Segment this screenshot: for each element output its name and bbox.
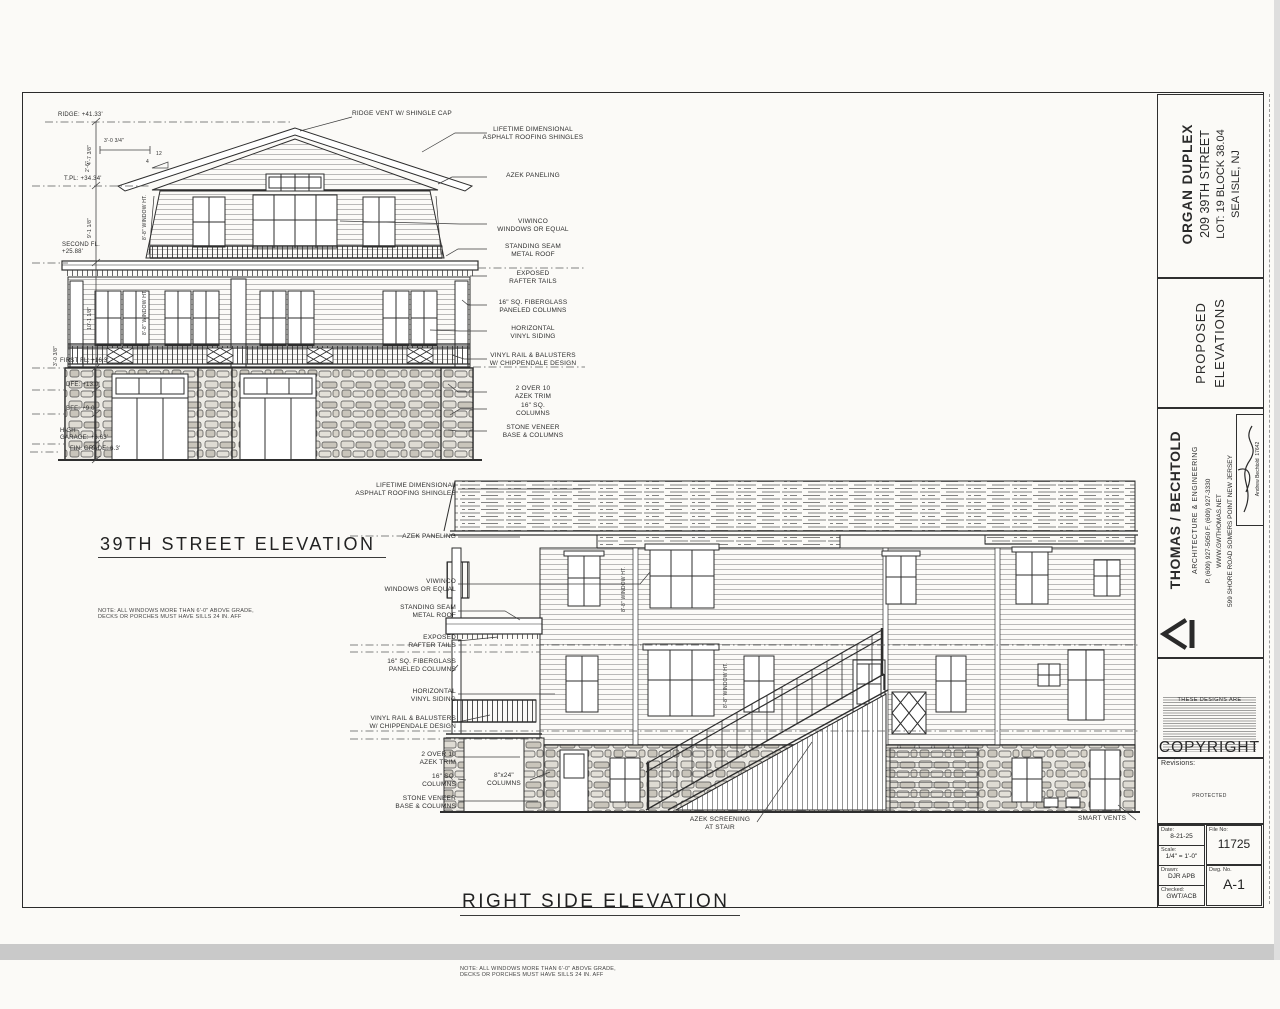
firm-website: WWW.GWTHOMAS.NET: [1214, 412, 1224, 650]
field-dwg-no: Dwg. No.A-1: [1206, 865, 1262, 906]
side-elevation-title-wrap: RIGHT SIDE ELEVATION NOTE: ALL WINDOWS M…: [460, 855, 740, 1009]
callout-vinyl-rail: VINYL RAIL & BALUSTERSW/ CHIPPENDALE DES…: [478, 352, 588, 368]
dim-second-first: 10'-1 1/8": [88, 307, 94, 330]
field-date: Date:8-21-25: [1158, 825, 1205, 846]
dim-tpl-second: 9'-1 1/8": [88, 218, 94, 238]
dim-pitch-run: 4: [146, 160, 149, 166]
front-window-ht-2f: 8'-8" WINDOW HT.: [143, 290, 149, 335]
callout-metal-roof: STANDING SEAMMETAL ROOF: [478, 243, 588, 259]
callout-stone-veneer: STONE VENEERBASE & COLUMNS: [478, 424, 588, 440]
side-elevation-title: RIGHT SIDE ELEVATION: [460, 891, 740, 916]
firm-name: THOMAS / BECHTOLD: [1162, 414, 1188, 606]
ridge-vent-callout: RIDGE VENT W/ SHINGLE CAP: [352, 110, 452, 118]
firm-tagline: ARCHITECTURE & ENGINEERING: [1190, 414, 1201, 606]
callout-sq-columns: 16" SQ.COLUMNS: [478, 402, 588, 418]
signature-name: Andrew Bechtold 17642: [1254, 416, 1262, 522]
sheet-title: PROPOSED ELEVATIONS: [1170, 284, 1250, 402]
field-checked: Checked:GWT/ACB: [1158, 885, 1205, 906]
side-callout-roof-shingles: LIFETIME DIMENSIONALASPHALT ROOFING SHIN…: [336, 482, 456, 498]
porch-column-label: 8"x24"COLUMNS: [478, 772, 530, 788]
copyright-fine-print: [1163, 697, 1256, 752]
side-callout-azek-trim: 2 OVER 10AZEK TRIM: [336, 751, 456, 767]
side-callout-metal-roof: STANDING SEAMMETAL ROOF: [336, 604, 456, 620]
side-elevation-note: NOTE: ALL WINDOWS MORE THAN 6'-0" ABOVE …: [460, 953, 740, 991]
front-window-ht-3f: 8'-8" WINDOW HT.: [143, 195, 149, 240]
field-drawn: Drawn:DJR APB: [1158, 865, 1205, 886]
dim-roof-height: 2'-6": [86, 161, 92, 172]
perforation-edge: [1269, 94, 1270, 904]
front-elevation-title-wrap: 39TH STREET ELEVATION NOTE: ALL WINDOWS …: [98, 498, 386, 651]
side-callout-rafter-tails: EXPOSEDRAFTER TAILS: [336, 634, 456, 650]
azek-screening-callout: AZEK SCREENINGAT STAIR: [678, 816, 762, 832]
side-callout-sq-columns: 16" SQ.COLUMNS: [336, 773, 456, 789]
callout-azek-paneling: AZEK PANELING: [478, 172, 588, 180]
side-callout-windows: VIWINCOWINDOWS OR EQUAL: [336, 578, 456, 594]
project-info: ORGAN DUPLEX 209 39TH STREET LOT: 19 BLO…: [1162, 96, 1260, 272]
dim-first-dfe: 3'-0 3/8": [54, 346, 60, 366]
side-callout-vinyl-siding: HORIZONTALVINYL SIDING: [336, 688, 456, 704]
datum-grade: FIN. GRADE: 6.3': [70, 446, 120, 453]
callout-windows: VIWINCOWINDOWS OR EQUAL: [478, 218, 588, 234]
revisions-label: Revisions:: [1161, 760, 1195, 767]
datum-garage: HIGHGARAGE: +6.63': [60, 428, 108, 442]
side-callout-azek-paneling: AZEK PANELING: [336, 533, 456, 541]
side-window-ht-lower: 8'-8" WINDOW HT.: [724, 663, 730, 708]
firm-phones: P. (609) 927-5050 F. (609) 927-3330: [1203, 412, 1213, 650]
datum-dfe: DFE: +13.0': [66, 382, 100, 389]
datum-first-floor: FIRST FL: +16.3': [60, 358, 109, 365]
datum-second-floor: SECOND FL.+25.88': [62, 242, 100, 256]
datum-bfe: BFE: +9.0': [66, 406, 96, 413]
field-file-no: File No:11725: [1206, 825, 1262, 865]
field-scale: Scale:1/4" = 1'-0": [1158, 845, 1205, 866]
callout-fiberglass-columns: 16" SQ. FIBERGLASSPANELED COLUMNS: [478, 299, 588, 315]
callout-vinyl-siding: HORIZONTALVINYL SIDING: [478, 325, 588, 341]
callout-azek-trim: 2 OVER 10AZEK TRIM: [478, 385, 588, 401]
dim-roof-width: 3'-0 3/4": [104, 139, 124, 145]
side-callout-fiberglass-columns: 16" SQ. FIBERGLASSPANELED COLUMNS: [336, 658, 456, 674]
side-callout-stone-veneer: STONE VENEERBASE & COLUMNS: [336, 795, 456, 811]
datum-top-plate: T.PL: +34.34': [64, 176, 102, 183]
datum-ridge: RIDGE: +41.33': [58, 112, 103, 119]
firm-address: 599 SHORE ROAD SOMERS POINT NEW JERSEY: [1225, 412, 1235, 650]
smart-vents-callout: SMART VENTS: [1078, 815, 1126, 823]
side-callout-vinyl-rail: VINYL RAIL & BALUSTERSW/ CHIPPENDALE DES…: [336, 715, 456, 731]
scan-edge-right: [1274, 0, 1280, 960]
callout-rafter-tails: EXPOSEDRAFTER TAILS: [478, 270, 588, 286]
side-window-ht-upper: 8'-8" WINDOW HT.: [622, 567, 628, 612]
dim-pitch-rise: 12: [156, 152, 162, 158]
callout-roof-shingles: LIFETIME DIMENSIONALASPHALT ROOFING SHIN…: [478, 126, 588, 142]
